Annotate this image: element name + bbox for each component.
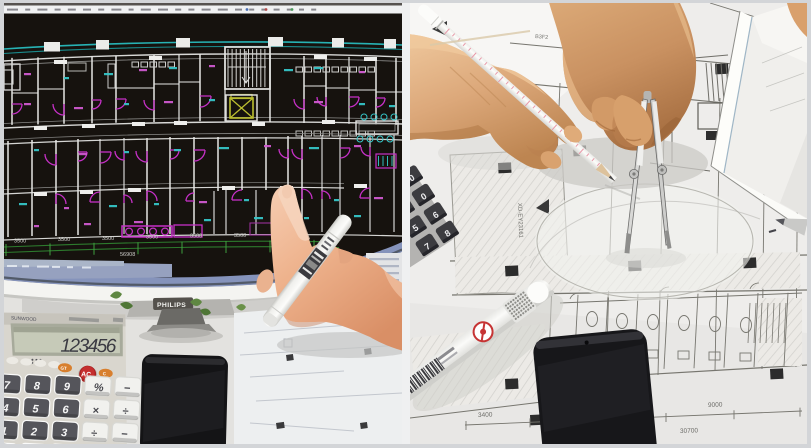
- svg-text:2: 2: [30, 426, 38, 438]
- svg-text:9000: 9000: [708, 401, 723, 409]
- svg-text:PHILIPS: PHILIPS: [157, 302, 186, 309]
- svg-text:56908: 56908: [120, 252, 135, 258]
- svg-text:3500: 3500: [146, 235, 158, 241]
- svg-text:%: %: [93, 382, 104, 395]
- svg-text:123456: 123456: [60, 336, 117, 357]
- svg-text:÷: ÷: [91, 428, 98, 440]
- svg-text:3500: 3500: [234, 233, 246, 239]
- svg-text:3500: 3500: [102, 236, 114, 242]
- svg-text:B3F2: B3F2: [535, 34, 549, 41]
- svg-text:4: 4: [4, 402, 9, 414]
- svg-text:÷: ÷: [122, 405, 129, 417]
- svg-text:3: 3: [61, 427, 68, 439]
- svg-text:3500: 3500: [58, 237, 70, 243]
- svg-text:3500: 3500: [14, 239, 26, 245]
- svg-text:GT: GT: [60, 366, 67, 371]
- svg-text:3400: 3400: [478, 411, 493, 419]
- svg-text:3500: 3500: [190, 234, 202, 240]
- svg-text:XD-EY23161: XD-EY23161: [516, 203, 523, 239]
- svg-text:30700: 30700: [680, 427, 699, 435]
